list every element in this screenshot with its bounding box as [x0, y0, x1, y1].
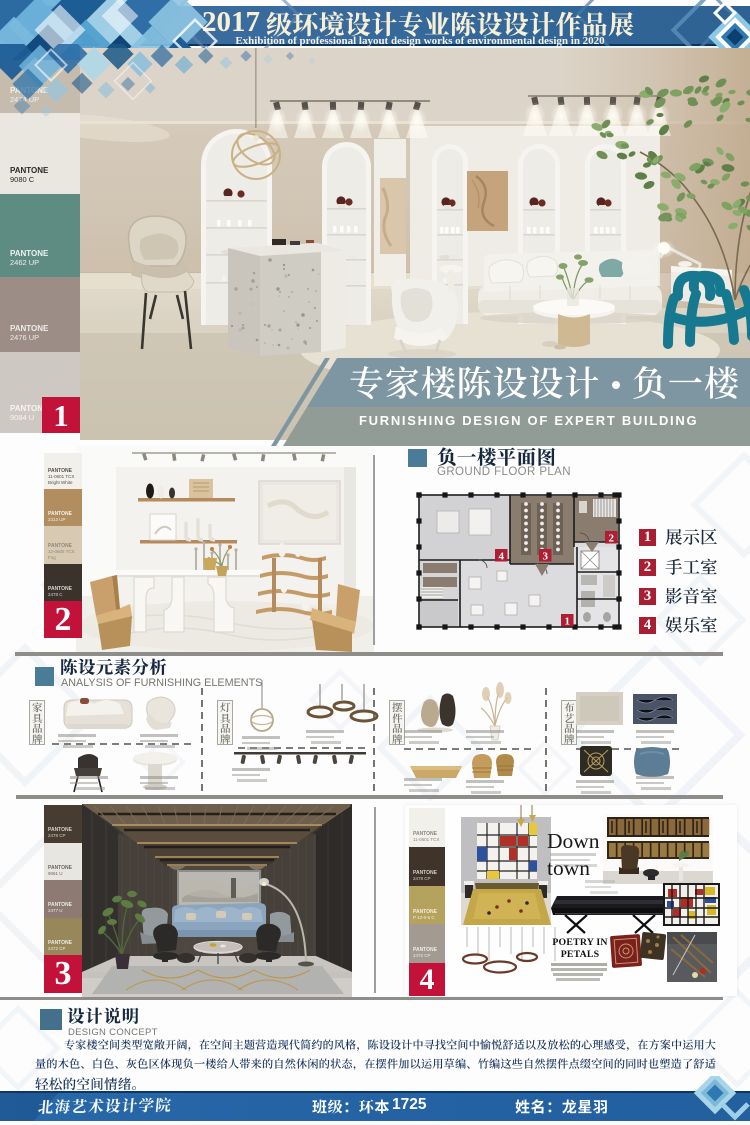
svg-text:4: 4 [498, 550, 504, 562]
svg-text:2: 2 [608, 532, 614, 544]
svg-text:3: 3 [542, 550, 548, 562]
svg-text:1: 1 [564, 615, 570, 627]
